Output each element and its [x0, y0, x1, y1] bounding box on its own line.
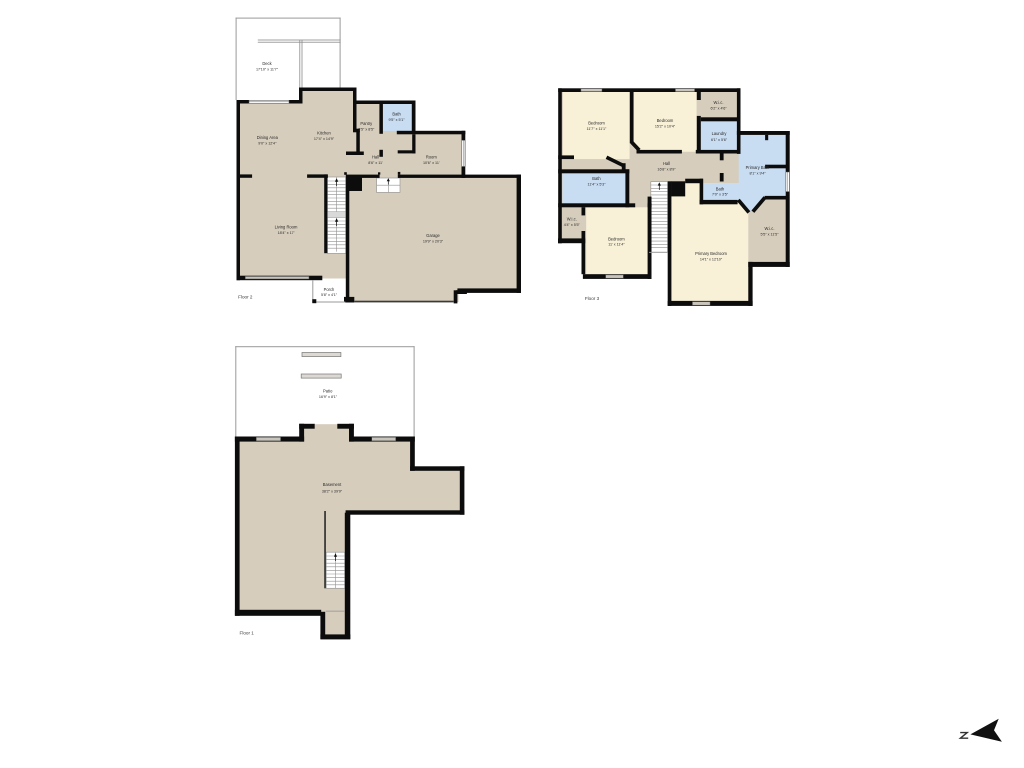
svg-text:19'9" x 20'3": 19'9" x 20'3": [423, 240, 444, 244]
svg-text:Deck: Deck: [262, 61, 272, 66]
svg-text:Bedroom: Bedroom: [608, 236, 625, 241]
svg-text:6'2" x 4'6": 6'2" x 4'6": [710, 106, 727, 110]
svg-text:Laundry: Laundry: [712, 131, 728, 136]
svg-text:Garage: Garage: [426, 233, 440, 238]
svg-text:Living Room: Living Room: [275, 225, 298, 230]
svg-text:11'4" x 5'3": 11'4" x 5'3": [588, 182, 607, 186]
svg-text:5'5" x 11'5": 5'5" x 11'5": [761, 233, 780, 237]
svg-text:Floor 2: Floor 2: [238, 295, 253, 300]
svg-text:Bath: Bath: [392, 111, 401, 116]
svg-text:17'10" x 11'7": 17'10" x 11'7": [256, 67, 279, 71]
svg-text:Floor 1: Floor 1: [240, 630, 255, 635]
svg-text:14'1" x 12'10": 14'1" x 12'10": [700, 258, 723, 262]
svg-text:16'8" x 8'9": 16'8" x 8'9": [657, 168, 676, 172]
svg-text:Bedroom: Bedroom: [657, 118, 674, 123]
svg-text:Patio: Patio: [323, 389, 333, 394]
svg-text:7'0" x 3'5": 7'0" x 3'5": [712, 192, 729, 196]
svg-text:Floor 3: Floor 3: [585, 296, 600, 301]
svg-text:W.i.c.: W.i.c.: [567, 217, 577, 222]
svg-text:Kitchen: Kitchen: [317, 131, 331, 136]
svg-text:Primary Bedroom: Primary Bedroom: [695, 251, 727, 256]
svg-text:3'5" x 8'5": 3'5" x 8'5": [358, 127, 375, 131]
svg-text:17'4" x 14'9": 17'4" x 14'9": [314, 137, 335, 141]
svg-text:9'0" x 12'4": 9'0" x 12'4": [258, 142, 277, 146]
svg-text:15'2" x 10'4": 15'2" x 10'4": [655, 124, 676, 128]
svg-text:10'6" x 11': 10'6" x 11': [423, 161, 440, 165]
svg-text:9'5" x 5'1": 9'5" x 5'1": [389, 118, 406, 122]
svg-text:11' x 11'4": 11' x 11'4": [608, 243, 625, 247]
svg-text:W.i.c.: W.i.c.: [713, 100, 723, 105]
svg-text:8'1" x 9'4": 8'1" x 9'4": [749, 171, 766, 175]
svg-text:Bath: Bath: [716, 186, 725, 191]
svg-text:Bath: Bath: [592, 176, 601, 181]
svg-text:16'9" x 8'1": 16'9" x 8'1": [319, 395, 338, 399]
svg-text:11'7" x 11'1": 11'7" x 11'1": [587, 127, 607, 131]
svg-text:Porch: Porch: [324, 287, 335, 292]
svg-text:Pantry: Pantry: [360, 121, 373, 126]
svg-text:Bedroom: Bedroom: [588, 121, 605, 126]
svg-text:38'2" x 39'9": 38'2" x 39'9": [322, 490, 343, 494]
svg-text:Basement: Basement: [323, 482, 342, 487]
svg-text:Primary Bath: Primary Bath: [746, 165, 770, 170]
svg-text:Hall: Hall: [663, 161, 670, 166]
svg-text:W.i.c.: W.i.c.: [764, 226, 774, 231]
svg-text:5'8" x 4'1": 5'8" x 4'1": [321, 293, 338, 297]
svg-text:4'4" x 5'5": 4'4" x 5'5": [564, 223, 581, 227]
svg-text:Room: Room: [426, 155, 438, 160]
svg-text:Dining Area: Dining Area: [257, 135, 279, 140]
svg-text:6'1" x 5'6": 6'1" x 5'6": [711, 138, 728, 142]
svg-text:Hall: Hall: [372, 155, 379, 160]
svg-text:8'6" x 11': 8'6" x 11': [368, 161, 383, 165]
svg-text:18'4" x 17': 18'4" x 17': [278, 231, 295, 235]
